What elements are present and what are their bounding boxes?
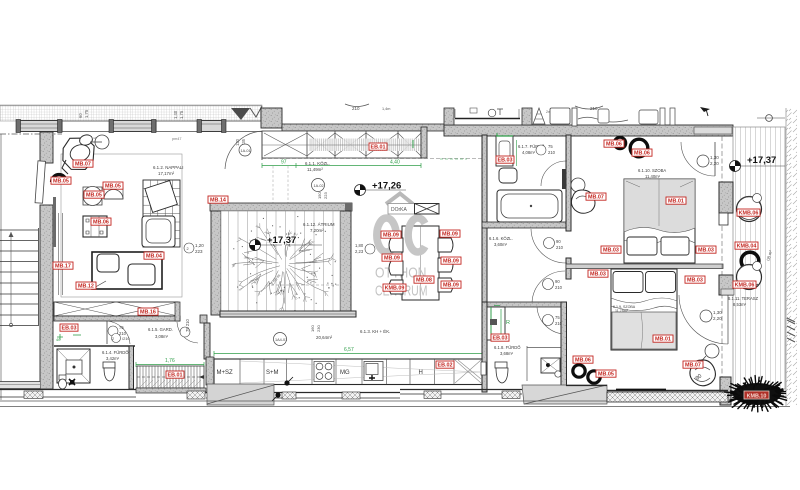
svg-text:2: 2	[112, 337, 114, 341]
svg-text:6.1.5. GARD.: 6.1.5. GARD.	[148, 327, 173, 332]
svg-text:20,64m²: 20,64m²	[316, 335, 333, 340]
svg-text:MB.05: MB.05	[105, 184, 121, 190]
svg-text:2,20: 2,20	[713, 316, 722, 321]
svg-text:2: 2	[187, 247, 189, 251]
svg-text:MB.05: MB.05	[598, 372, 614, 378]
svg-text:EB.03: EB.03	[493, 336, 508, 342]
svg-text:1,20: 1,20	[195, 243, 204, 248]
svg-text:EB.01: EB.01	[371, 145, 386, 151]
svg-text:75: 75	[555, 315, 560, 320]
svg-text:MB.07: MB.07	[75, 162, 91, 168]
svg-text:210: 210	[555, 285, 563, 290]
svg-text:8,53m²: 8,53m²	[733, 302, 747, 307]
svg-text:150: 150	[317, 192, 322, 199]
svg-text:MB.09: MB.09	[442, 232, 458, 238]
svg-text:1,80: 1,80	[355, 243, 364, 248]
svg-text:1,75: 1,75	[179, 110, 184, 119]
svg-text:1A-02: 1A-02	[314, 184, 324, 188]
svg-text:7,20m²: 7,20m²	[310, 228, 324, 233]
svg-text:11,40m²: 11,40m²	[645, 174, 661, 179]
svg-text:60: 60	[78, 113, 83, 118]
svg-text:R: R	[506, 320, 510, 326]
svg-text:3,08m²: 3,08m²	[155, 334, 169, 339]
svg-text:S+M: S+M	[266, 370, 279, 376]
svg-text:MB.01: MB.01	[655, 337, 671, 343]
svg-text:MB.14: MB.14	[210, 198, 226, 204]
svg-text:MG: MG	[340, 370, 350, 376]
svg-text:160: 160	[310, 325, 315, 332]
svg-text:210: 210	[352, 106, 360, 111]
svg-text:11,49m²: 11,49m²	[307, 167, 323, 172]
svg-text:6.1.11. TERASZ: 6.1.11. TERASZ	[728, 296, 759, 301]
svg-text:6.1.2. NAPPALI: 6.1.2. NAPPALI	[153, 165, 183, 170]
svg-text:75 210: 75 210	[185, 319, 190, 332]
svg-text:3,68m²: 3,68m²	[500, 351, 514, 356]
svg-text:210: 210	[548, 150, 556, 155]
svg-text:90: 90	[556, 239, 561, 244]
svg-text:75: 75	[119, 325, 124, 330]
svg-text:6.1.4. FÜRDŐ: 6.1.4. FÜRDŐ	[102, 350, 129, 355]
svg-text:DOrKA: DOrKA	[391, 207, 408, 213]
svg-text:MB.05: MB.05	[86, 193, 102, 199]
svg-text:4,08m²: 4,08m²	[522, 150, 536, 155]
svg-text:6.1.6. KÖZL.: 6.1.6. KÖZL.	[489, 236, 513, 241]
svg-text:6.1.3. KH + ÉK.: 6.1.3. KH + ÉK.	[360, 329, 390, 334]
svg-text:MB.09: MB.09	[384, 256, 400, 262]
svg-text:1,75: 1,75	[84, 109, 89, 118]
svg-text:210: 210	[556, 245, 564, 250]
svg-text:MB.17: MB.17	[55, 264, 71, 270]
svg-text:11,75m²: 11,75m²	[615, 309, 629, 313]
svg-text:MB.06: MB.06	[575, 358, 591, 364]
svg-text:pm47: pm47	[172, 137, 182, 141]
svg-text:MB.09: MB.09	[443, 283, 459, 289]
svg-text:6.1.12. ÁTRIUM: 6.1.12. ÁTRIUM	[303, 222, 335, 227]
svg-text:40: 40	[56, 337, 61, 342]
svg-text:6.1.10. SZOBA: 6.1.10. SZOBA	[638, 168, 666, 173]
svg-text:MB.05: MB.05	[53, 179, 69, 185]
svg-text:97: 97	[281, 160, 287, 166]
svg-text:75: 75	[548, 144, 553, 149]
svg-text:1,40: 1,40	[173, 110, 178, 119]
svg-text:4,40: 4,40	[390, 160, 400, 166]
svg-text:1,4m: 1,4m	[382, 107, 390, 111]
svg-text:MB.07: MB.07	[588, 195, 604, 201]
svg-text:+17,37: +17,37	[267, 235, 296, 246]
svg-text:EB.03: EB.03	[498, 158, 513, 164]
svg-text:1,76: 1,76	[165, 358, 175, 364]
svg-text:+17,37: +17,37	[747, 155, 776, 166]
svg-text:MB.09: MB.09	[383, 233, 399, 239]
svg-text:6.1.8. FÜRDŐ: 6.1.8. FÜRDŐ	[494, 345, 521, 350]
svg-text:KMB.04: KMB.04	[737, 244, 757, 250]
svg-text:KMB.06: KMB.06	[739, 211, 759, 217]
svg-text:210: 210	[590, 106, 598, 111]
svg-text:MB.04: MB.04	[146, 254, 162, 260]
svg-text:MB.06: MB.06	[606, 142, 622, 148]
svg-text:KMB.09: KMB.09	[385, 286, 405, 292]
svg-text:1A-01: 1A-01	[241, 149, 251, 153]
svg-text:MB.03: MB.03	[590, 272, 606, 278]
svg-text:17,17m²: 17,17m²	[158, 171, 175, 176]
svg-text:90: 90	[555, 279, 560, 284]
svg-text:1A4-01: 1A4-01	[275, 338, 287, 342]
svg-text:MB.06: MB.06	[634, 151, 650, 157]
svg-text:223: 223	[323, 192, 328, 199]
svg-text:3,42m²: 3,42m²	[106, 356, 120, 361]
svg-text:MB.08: MB.08	[416, 278, 432, 284]
svg-text:2,23: 2,23	[355, 249, 364, 254]
svg-text:EB.02: EB.02	[438, 363, 453, 369]
svg-text:+17,26: +17,26	[372, 181, 401, 192]
svg-text:M+SZ: M+SZ	[217, 370, 234, 376]
svg-text:EB.03: EB.03	[62, 326, 77, 332]
svg-text:MB.03: MB.03	[687, 278, 703, 284]
svg-text:MB.12: MB.12	[78, 284, 94, 290]
svg-text:KMB.10: KMB.10	[747, 393, 767, 399]
svg-text:223: 223	[195, 249, 203, 254]
svg-text:H: H	[419, 370, 423, 376]
svg-text:/210: /210	[122, 336, 131, 341]
svg-text:2,20: 2,20	[710, 161, 719, 166]
svg-text:MB.16: MB.16	[140, 310, 156, 316]
svg-text:MB.03: MB.03	[698, 248, 714, 254]
svg-text:MB.01: MB.01	[668, 199, 684, 205]
svg-text:MB.06: MB.06	[93, 220, 109, 226]
svg-text:3,60m²: 3,60m²	[494, 242, 508, 247]
svg-text:6.1.1. KÖZL.: 6.1.1. KÖZL.	[305, 161, 330, 166]
svg-text:MB.03: MB.03	[603, 248, 619, 254]
svg-text:m4: m4	[92, 136, 96, 140]
svg-text:MB.09: MB.09	[443, 259, 459, 265]
svg-text:230: 230	[316, 325, 321, 332]
svg-text:1,30: 1,30	[710, 155, 719, 160]
svg-text:EB.01: EB.01	[168, 373, 183, 379]
svg-text:KMB.06: KMB.06	[735, 283, 755, 289]
svg-text:6,57: 6,57	[344, 347, 354, 353]
svg-text:MB.07: MB.07	[685, 363, 701, 369]
svg-text:1,30: 1,30	[713, 310, 722, 315]
